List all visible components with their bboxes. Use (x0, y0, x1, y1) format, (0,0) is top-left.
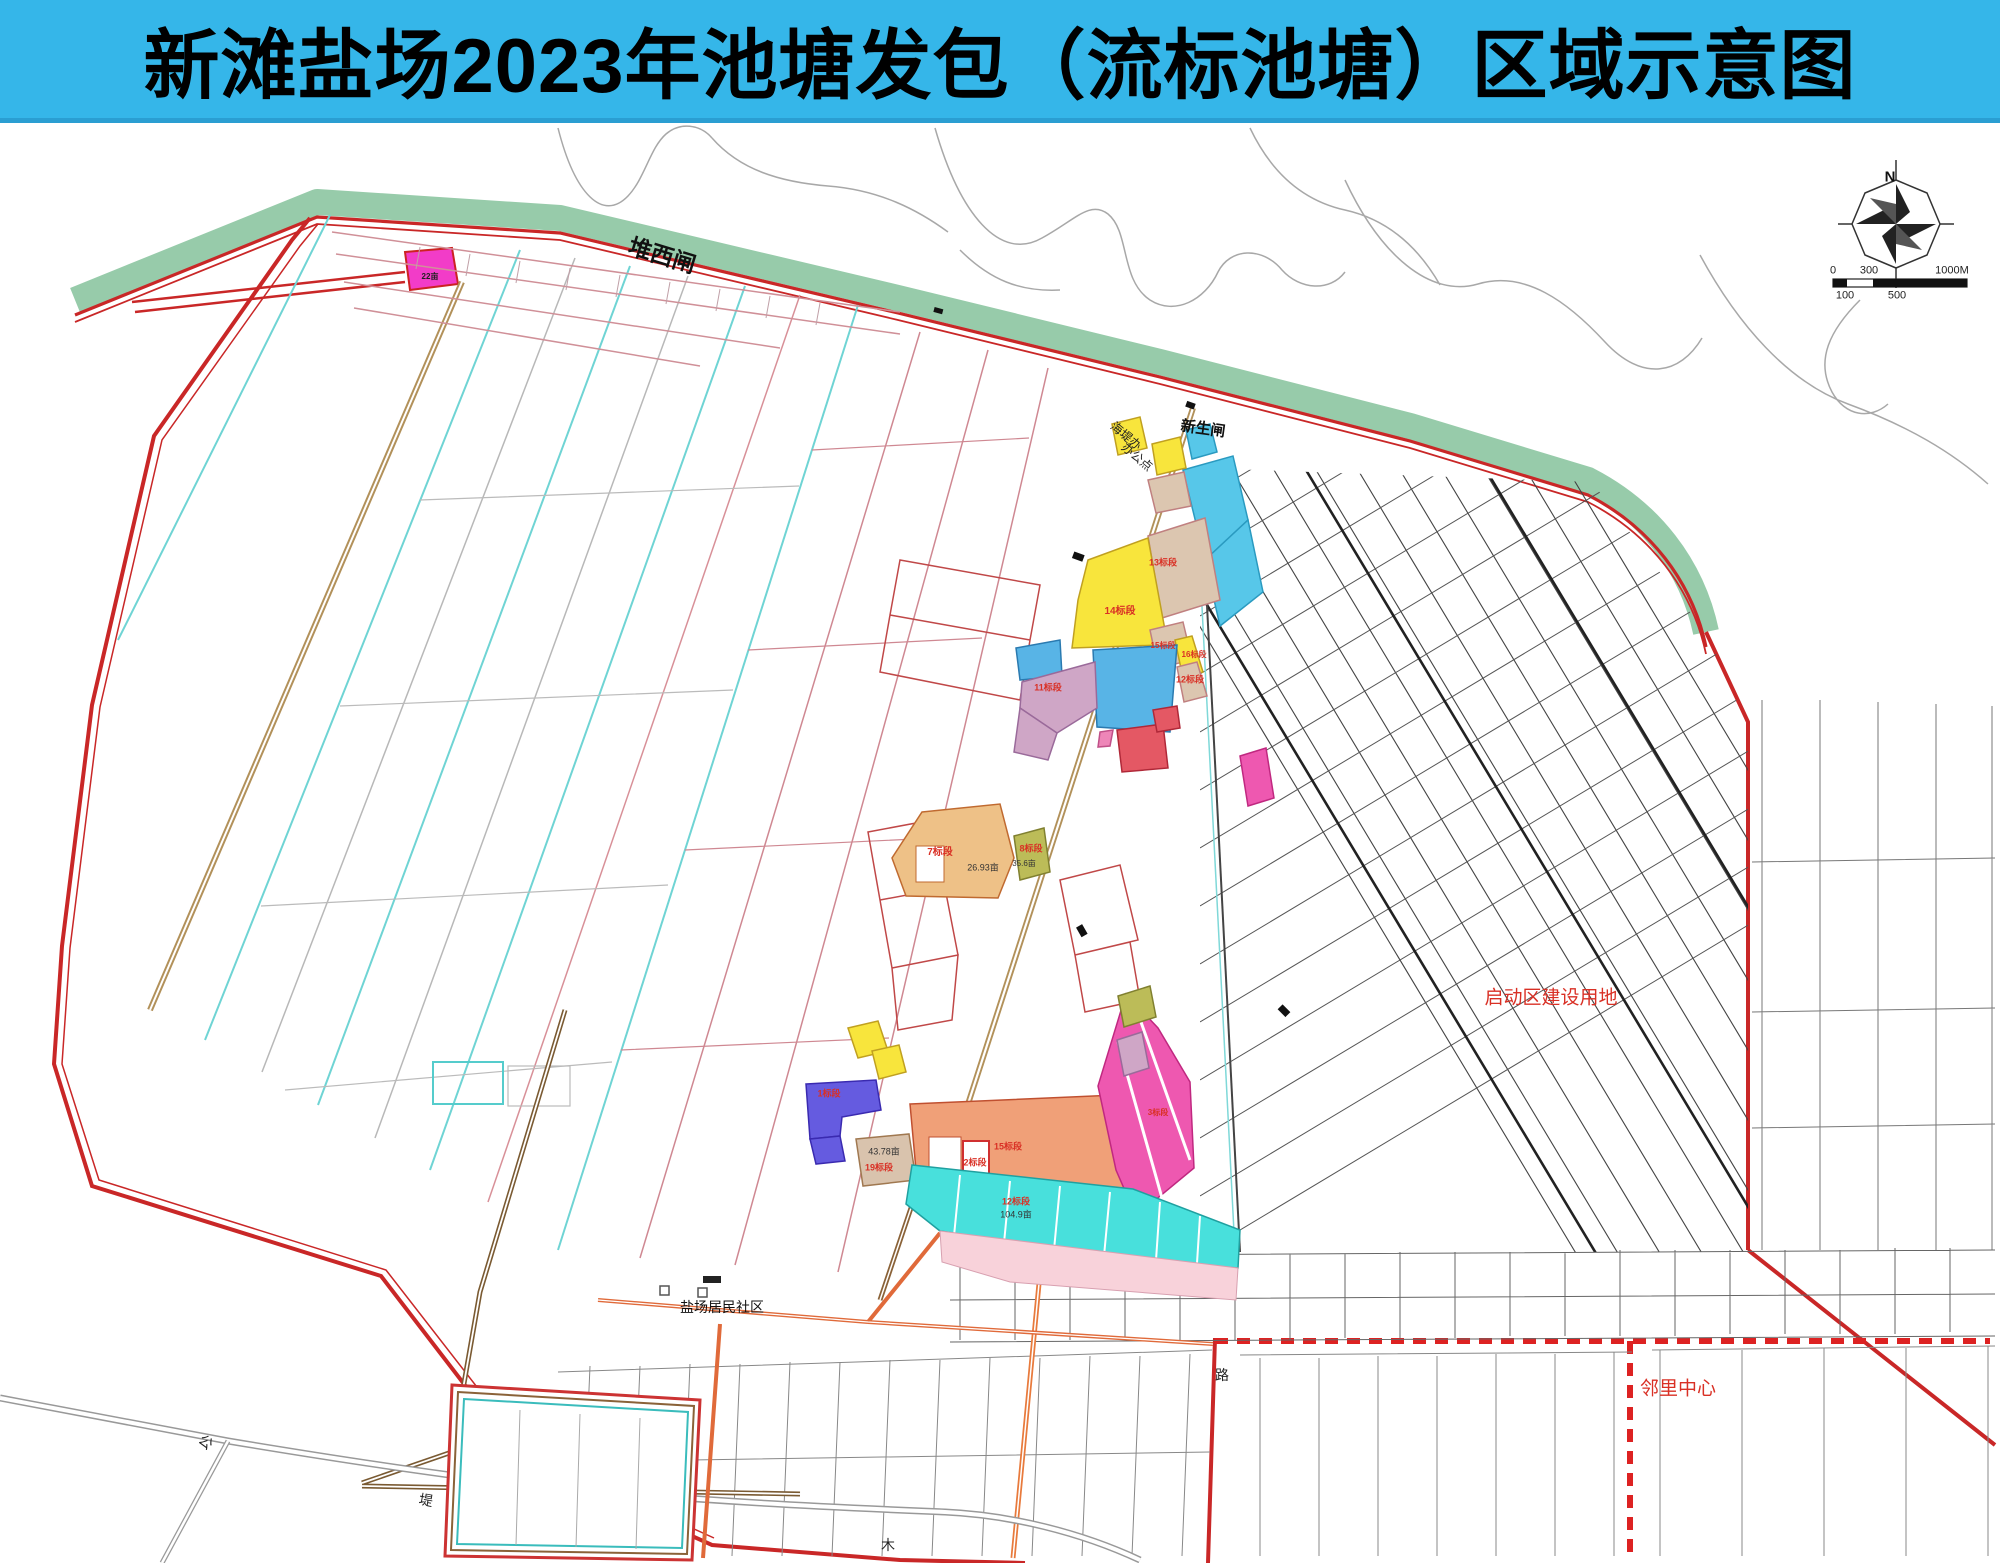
scale-bar (1833, 279, 1967, 287)
page-title: 新滩盐场2023年池塘发包（流标池塘）区域示意图 (143, 4, 1856, 114)
map-canvas (0, 0, 2000, 1563)
river-ring-parcel (405, 248, 458, 290)
title-bar: 新滩盐场2023年池塘发包（流标池塘）区域示意图 (0, 0, 2000, 123)
